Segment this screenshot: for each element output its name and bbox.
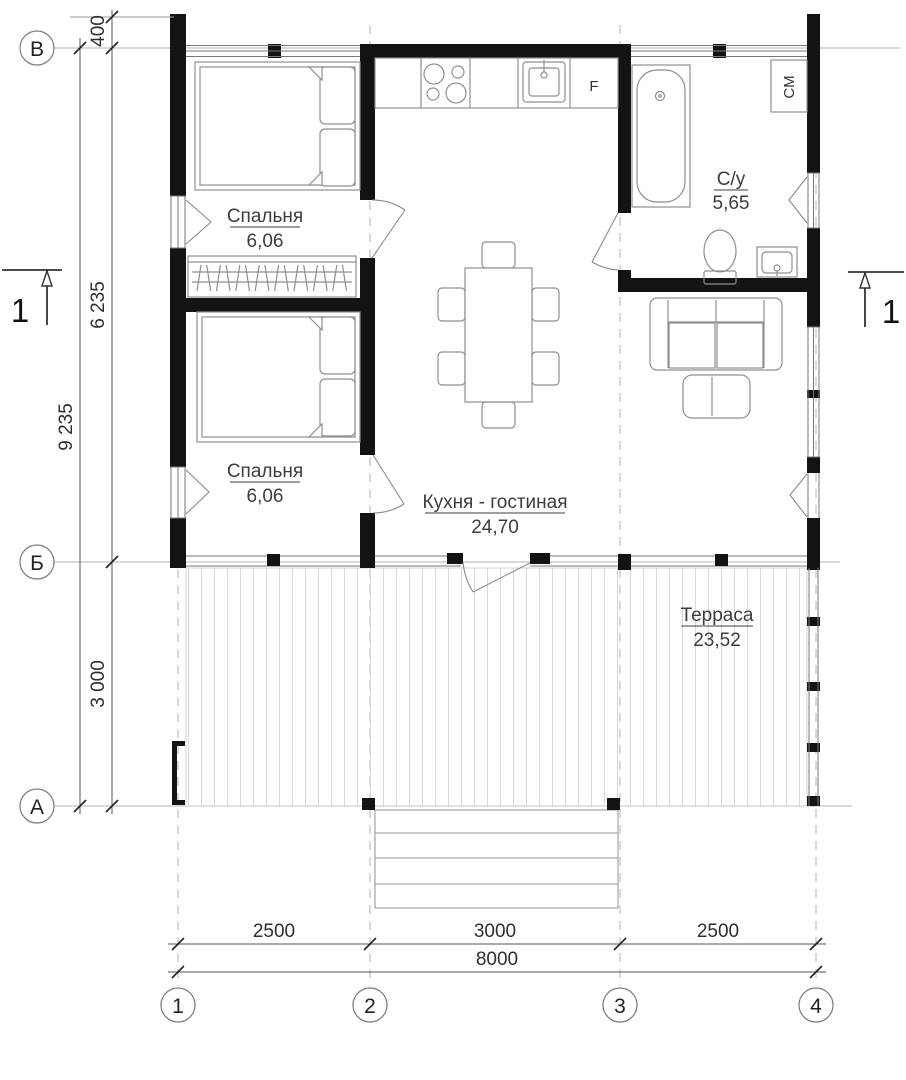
- coffee-table-icon: [683, 375, 750, 418]
- room-label-bathroom: С/у 5,65: [713, 169, 750, 214]
- dim-bay2: 3000: [474, 921, 516, 942]
- room-area: 6,06: [247, 486, 284, 507]
- dim-left-total: 9 235: [56, 403, 77, 451]
- sofa-icon: [650, 298, 782, 370]
- dining-table-icon: [438, 242, 559, 428]
- stove-icon: [424, 64, 466, 103]
- wardrobe-icon: [188, 256, 356, 297]
- section-label: 1: [882, 293, 900, 330]
- grid-row-a: А: [30, 796, 44, 819]
- room-name: Спальня: [227, 461, 303, 482]
- grid-row-v: В: [30, 38, 44, 61]
- washing-machine-label: СМ: [781, 75, 798, 98]
- section-label: 1: [11, 292, 29, 329]
- stairs: [375, 810, 618, 908]
- fridge-label: F: [589, 78, 598, 95]
- grid-col-4: 4: [810, 995, 822, 1018]
- grid-col-3: 3: [614, 995, 626, 1018]
- room-label-kitchen-living: Кухня - гостиная 24,70: [423, 492, 568, 538]
- room-label-bedroom1: Спальня 6,06: [227, 206, 303, 252]
- dimensions-left: 400 6 235 3 000 9 235: [56, 10, 174, 814]
- bedroom1-door: [372, 200, 405, 258]
- grid-col-1: 1: [172, 995, 184, 1018]
- floor-plan-page: F СМ: [0, 0, 906, 1080]
- bathtub-icon: [632, 65, 690, 207]
- floor-plan-svg: F СМ: [0, 0, 906, 1080]
- bathroom-door: [592, 213, 618, 270]
- section-marker-left: 1: [2, 270, 62, 329]
- grid-row-b: Б: [30, 552, 44, 575]
- dim-bay1: 2500: [253, 921, 295, 942]
- room-label-bedroom2: Спальня 6,06: [227, 461, 303, 507]
- room-name: Кухня - гостиная: [423, 492, 568, 513]
- bed-icon: [195, 62, 360, 190]
- dim-bay3: 2500: [697, 921, 739, 942]
- kitchen-sink-icon: [523, 60, 565, 102]
- terrace-deck: [186, 568, 807, 806]
- dimensions-bottom: 2500 3000 2500 8000: [168, 921, 826, 978]
- dim-total: 8000: [476, 949, 518, 970]
- room-name: Терраса: [681, 605, 754, 626]
- kitchen-counter: [375, 58, 618, 108]
- dim-left-lower: 3 000: [88, 660, 109, 708]
- room-name: Спальня: [227, 206, 303, 227]
- dim-left-upper: 6 235: [88, 281, 109, 329]
- grid-col-2: 2: [364, 995, 376, 1018]
- room-area: 23,52: [693, 630, 741, 651]
- room-area: 24,70: [471, 517, 519, 538]
- bed-icon: [197, 312, 360, 442]
- dim-left-offset: 400: [88, 15, 109, 47]
- room-name: С/у: [717, 169, 746, 190]
- bathroom-sink-icon: [757, 247, 797, 277]
- room-area: 6,06: [247, 231, 284, 252]
- bedroom2-door: [373, 455, 404, 513]
- section-marker-right: 1: [848, 272, 904, 330]
- toilet-icon: [704, 230, 736, 284]
- room-area: 5,65: [713, 193, 750, 214]
